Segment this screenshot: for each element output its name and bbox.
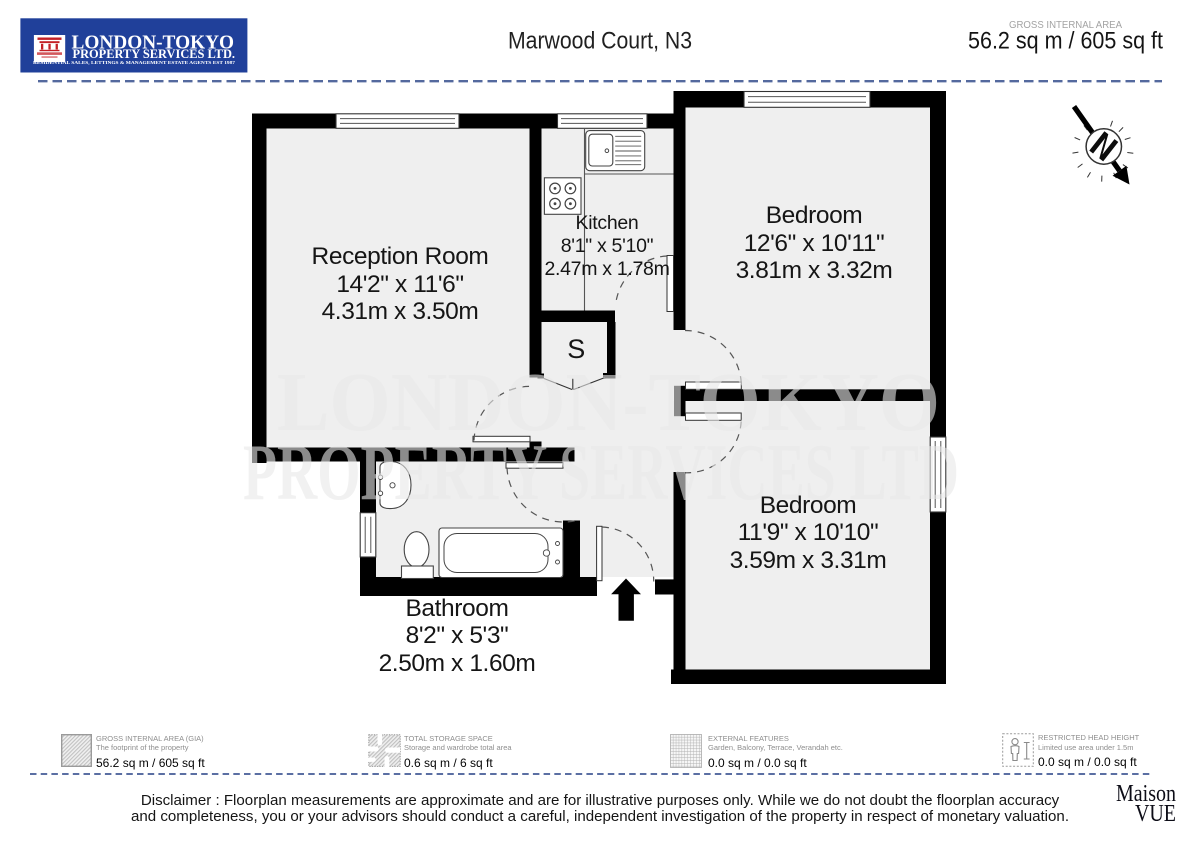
svg-text:VUE: VUE (1135, 801, 1176, 827)
